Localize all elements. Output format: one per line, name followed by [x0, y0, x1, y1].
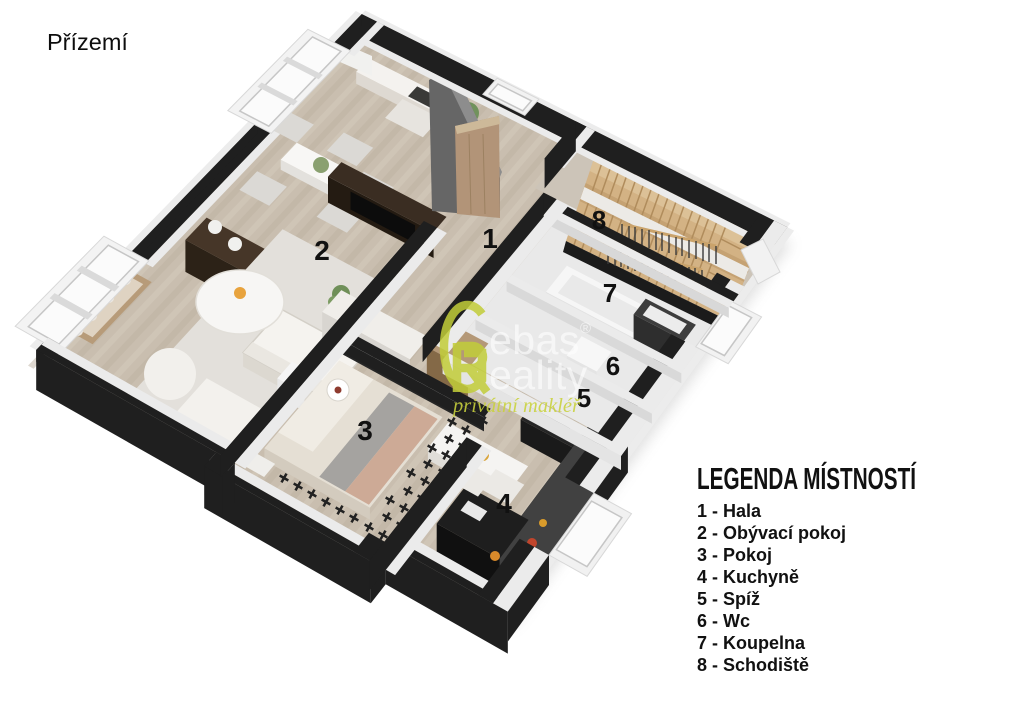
svg-text:3 - Pokoj: 3 - Pokoj [697, 545, 772, 565]
svg-text:8 - Schodiště: 8 - Schodiště [697, 655, 809, 675]
svg-text:2: 2 [314, 235, 330, 266]
svg-text:privátní makléř: privátní makléř [451, 395, 581, 417]
svg-text:3: 3 [357, 415, 373, 446]
svg-text:1 - Hala: 1 - Hala [697, 501, 762, 521]
svg-text:7 - Koupelna: 7 - Koupelna [697, 633, 806, 653]
svg-text:®: ® [580, 320, 591, 337]
svg-text:6: 6 [606, 351, 620, 381]
svg-text:LEGENDA MÍSTNOSTÍ: LEGENDA MÍSTNOSTÍ [697, 461, 917, 496]
svg-text:6 - Wc: 6 - Wc [697, 611, 750, 631]
svg-text:2 - Obývací pokoj: 2 - Obývací pokoj [697, 523, 846, 543]
svg-text:7: 7 [603, 278, 617, 308]
svg-text:eality: eality [489, 352, 588, 398]
svg-text:5 - Spíž: 5 - Spíž [697, 589, 760, 609]
svg-text:1: 1 [482, 223, 498, 254]
svg-text:Přízemí: Přízemí [47, 29, 128, 55]
svg-text:4: 4 [496, 488, 512, 519]
svg-text:4 - Kuchyně: 4 - Kuchyně [697, 567, 799, 587]
svg-text:8: 8 [592, 205, 606, 235]
